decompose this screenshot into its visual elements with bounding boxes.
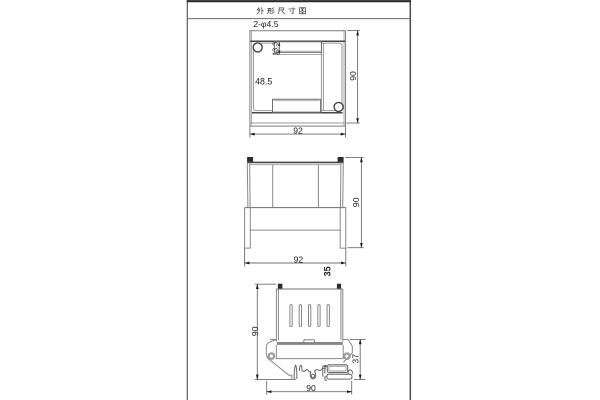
svg-text:90: 90 bbox=[348, 71, 358, 81]
svg-text:90: 90 bbox=[351, 197, 361, 207]
svg-text:92: 92 bbox=[293, 126, 303, 136]
svg-text:90: 90 bbox=[306, 383, 316, 393]
svg-text:48.5: 48.5 bbox=[255, 76, 272, 86]
svg-text:90: 90 bbox=[250, 326, 260, 336]
svg-text:2-φ4.5: 2-φ4.5 bbox=[253, 19, 279, 29]
svg-text:35: 35 bbox=[323, 266, 333, 276]
svg-text:92: 92 bbox=[294, 255, 304, 265]
svg-text:37: 37 bbox=[350, 354, 360, 364]
